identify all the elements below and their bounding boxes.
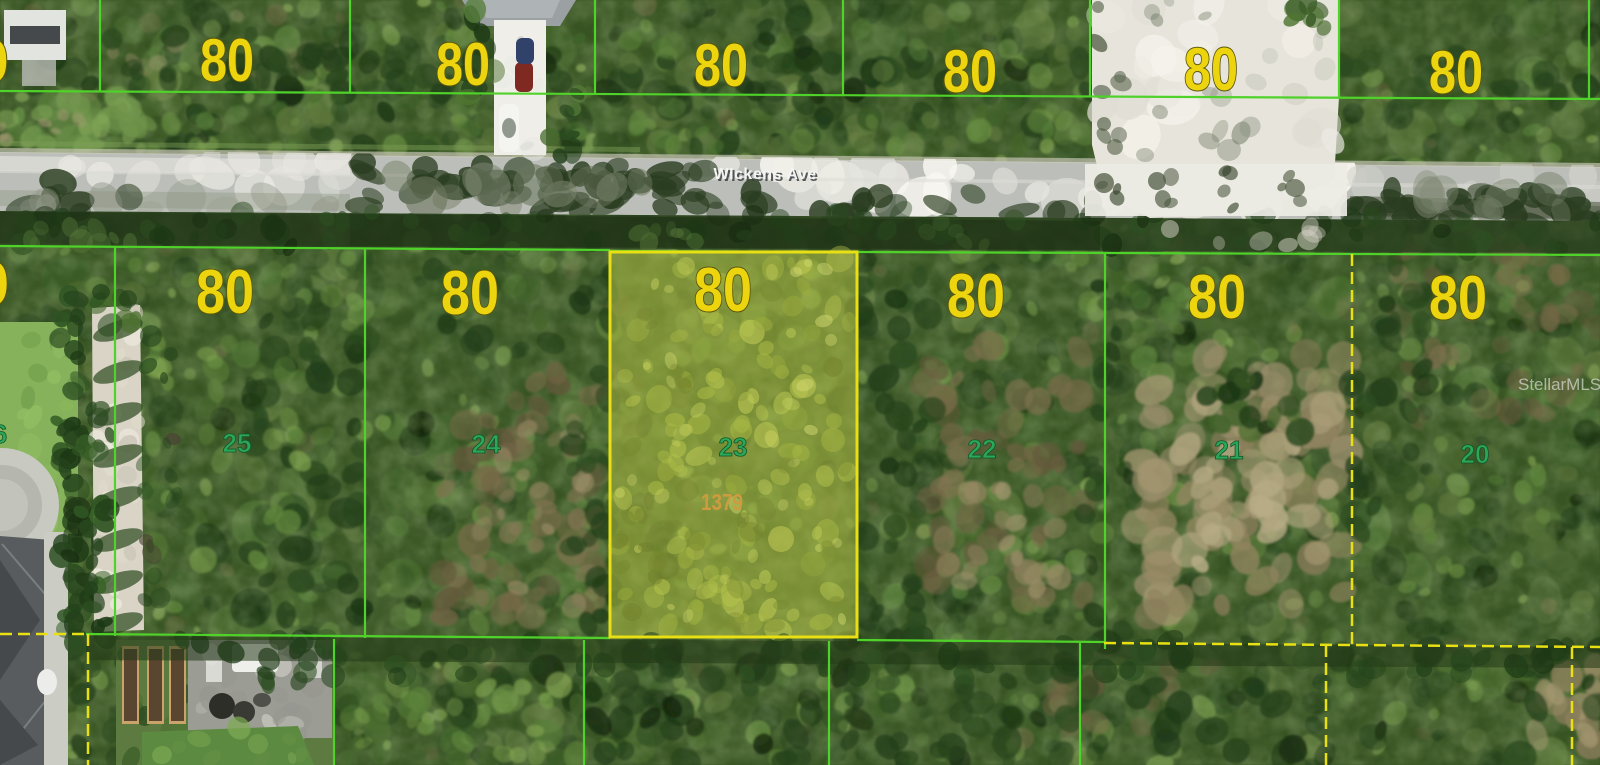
svg-text:0: 0 — [0, 28, 9, 95]
svg-text:80: 80 — [200, 27, 254, 94]
svg-text:0: 0 — [0, 250, 9, 319]
svg-text:24: 24 — [472, 429, 501, 459]
svg-text:80: 80 — [694, 256, 752, 325]
svg-text:22: 22 — [968, 434, 997, 464]
svg-text:21: 21 — [1215, 435, 1244, 465]
svg-text:WIckens Ave: WIckens Ave — [713, 166, 816, 183]
svg-text:80: 80 — [436, 31, 490, 98]
svg-text:StellarMLS: StellarMLS — [1518, 375, 1600, 394]
svg-text:1379: 1379 — [701, 489, 743, 515]
svg-text:80: 80 — [1429, 39, 1483, 106]
svg-text:6: 6 — [0, 419, 7, 449]
svg-text:80: 80 — [943, 38, 997, 105]
svg-text:20: 20 — [1461, 439, 1490, 469]
svg-text:80: 80 — [1184, 36, 1238, 103]
svg-text:25: 25 — [223, 428, 252, 458]
svg-text:80: 80 — [1429, 264, 1487, 333]
svg-text:80: 80 — [947, 262, 1005, 331]
svg-text:23: 23 — [719, 432, 748, 462]
svg-text:80: 80 — [1188, 263, 1246, 332]
svg-text:80: 80 — [196, 258, 254, 327]
svg-text:80: 80 — [441, 259, 499, 328]
svg-text:80: 80 — [694, 32, 748, 99]
